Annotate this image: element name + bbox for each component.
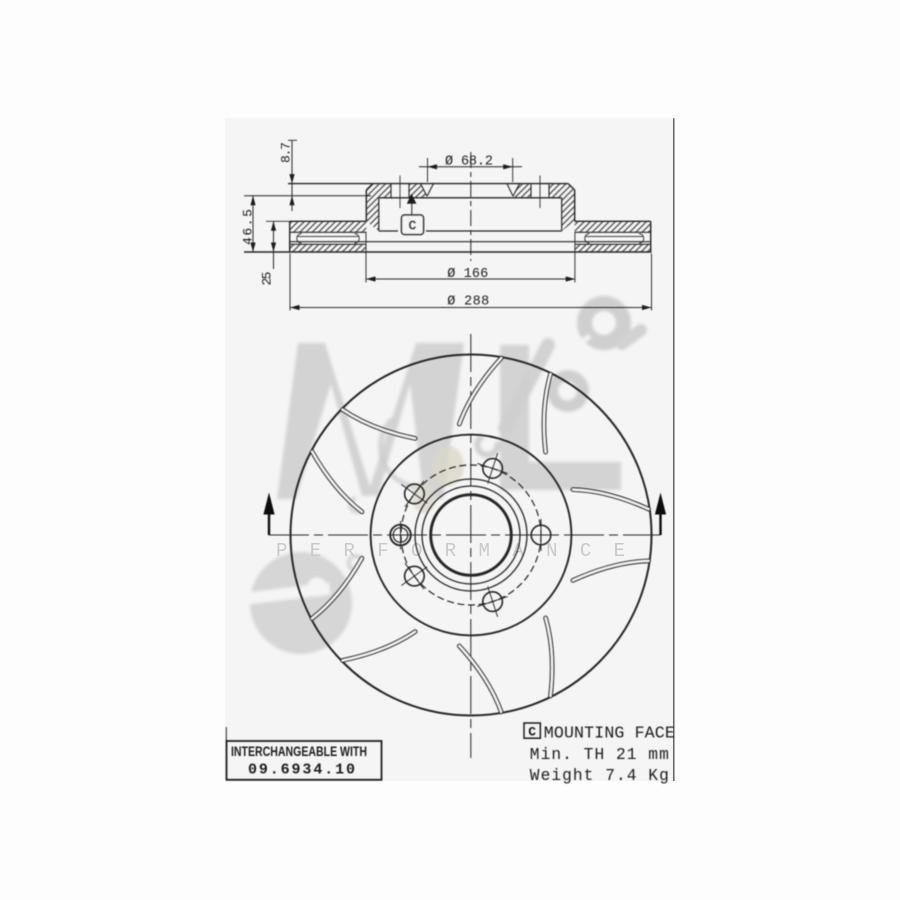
svg-text:INTERCHANGEABLE WITH: INTERCHANGEABLE WITH [231,744,367,759]
svg-text:Ø 68.2: Ø 68.2 [445,155,493,170]
svg-text:8.7: 8.7 [279,142,294,163]
svg-text:Ø 166: Ø 166 [447,267,488,282]
svg-text:MOUNTING FACE: MOUNTING FACE [544,724,675,743]
svg-text:46.5: 46.5 [241,209,256,245]
svg-text:Weight 7.4 Kg: Weight 7.4 Kg [530,767,669,785]
svg-text:09.6934.10: 09.6934.10 [248,762,355,779]
svg-text:C: C [528,725,536,740]
svg-text:Min. TH 21 mm: Min. TH 21 mm [530,746,669,764]
svg-text:C: C [408,220,416,235]
svg-text:25: 25 [260,272,275,286]
svg-text:Ø 288: Ø 288 [447,295,489,310]
